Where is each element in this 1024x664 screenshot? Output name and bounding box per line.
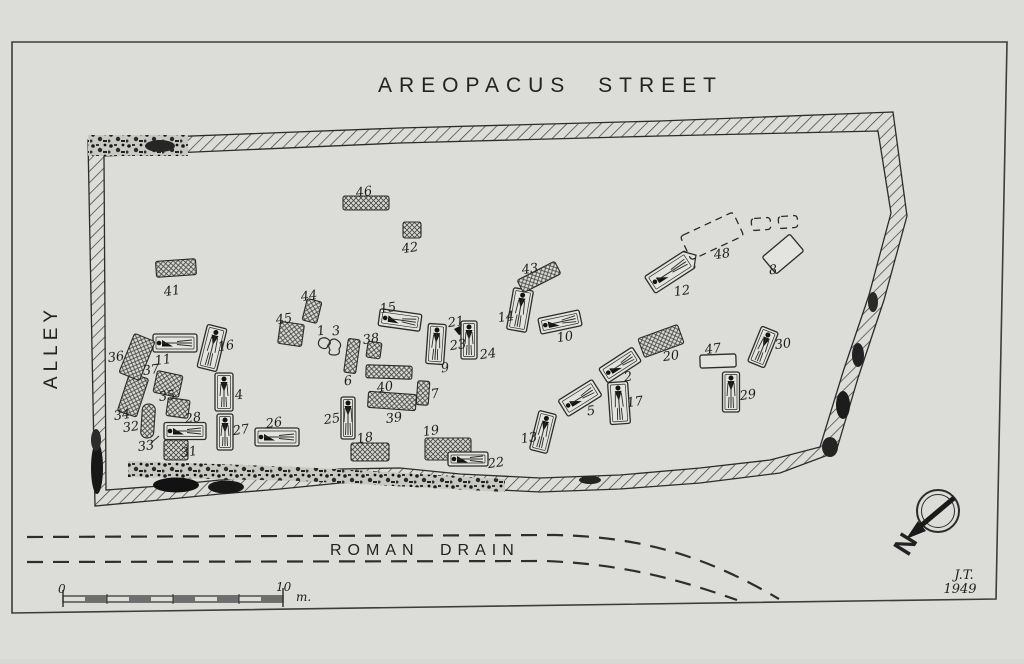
feature-number: 40	[375, 379, 394, 396]
feature-number: 31	[180, 444, 198, 461]
feature-number: 12	[673, 283, 691, 300]
plan-sheet: 1234567891011121314151617181920212223242…	[0, 0, 1024, 659]
feature-number: 36	[107, 349, 125, 366]
feature-number: 34	[113, 407, 131, 424]
feature-40	[366, 365, 412, 380]
feature-dashed-grave	[751, 217, 771, 230]
feature-41	[155, 259, 196, 278]
feature-4	[215, 373, 233, 411]
feature-2	[599, 347, 642, 383]
feature-number: 29	[738, 387, 757, 404]
feature-number: 3	[331, 323, 341, 339]
feature-number: 38	[362, 331, 380, 348]
feature-29	[723, 372, 740, 412]
feature-number: 46	[354, 184, 373, 201]
feature-3	[329, 339, 341, 355]
feature-number: 20	[661, 348, 680, 365]
feature-number: 7	[430, 386, 441, 402]
feature-39	[368, 391, 417, 410]
alley-label: ALLEY	[41, 287, 63, 407]
boundary-wall	[88, 112, 907, 506]
feature-number: 1	[316, 323, 326, 339]
feature-30	[748, 326, 779, 368]
feature-number: 25	[322, 411, 341, 428]
feature-27	[217, 414, 233, 450]
feature-32	[140, 404, 155, 439]
feature-5	[558, 379, 602, 416]
feature-number: 5	[586, 403, 596, 419]
feature-number: 4	[233, 387, 244, 403]
feature-number: 19	[422, 423, 440, 440]
scale-ten: 10	[276, 580, 291, 594]
feature-number: 43	[520, 261, 539, 278]
feature-number: 13	[520, 430, 538, 447]
signature-initials: J.T.	[940, 568, 988, 583]
feature-9	[426, 323, 447, 364]
feature-number: 27	[231, 422, 251, 439]
feature-11	[153, 334, 197, 352]
feature-number: 26	[264, 415, 283, 432]
feature-number: 33	[137, 438, 155, 455]
feature-number: 9	[440, 360, 450, 376]
feature-7	[416, 381, 430, 406]
feature-6	[344, 338, 361, 373]
scale-zero: 0	[58, 582, 66, 596]
feature-25	[341, 397, 355, 439]
roman-drain-label: ROMAN DRAIN	[330, 542, 500, 560]
feature-dashed-grave	[778, 215, 798, 228]
feature-number: 37	[142, 362, 161, 379]
feature-number: 10	[556, 329, 574, 346]
feature-number: 14	[497, 309, 515, 326]
signature-year: 1949	[936, 582, 984, 597]
feature-number: 18	[356, 430, 374, 447]
feature-number: 48	[712, 246, 731, 263]
wall-stones	[88, 135, 878, 494]
feature-26	[255, 428, 299, 446]
feature-number: 17	[626, 394, 645, 411]
photo-of-plan: { "title": "AREOPACUS STREET", "side_lab…	[0, 0, 1024, 659]
feature-number: 6	[343, 373, 353, 389]
feature-42	[403, 222, 421, 238]
feature-number: 47	[703, 341, 723, 358]
street-title: AREOPACUS STREET	[378, 74, 723, 98]
scale-bar	[63, 588, 283, 607]
features-layer	[117, 196, 804, 466]
site-plan-svg: 1234567891011121314151617181920212223242…	[0, 0, 1024, 659]
feature-number: 15	[379, 300, 397, 317]
feature-number: 45	[274, 311, 293, 328]
feature-number: 24	[478, 346, 497, 363]
feature-number: 16	[217, 338, 235, 355]
feature-number: 39	[385, 410, 403, 427]
feature-number: 21	[446, 314, 465, 331]
feature-18	[351, 443, 389, 461]
feature-number: 44	[299, 288, 318, 305]
feature-number: 41	[162, 283, 181, 300]
feature-number: 28	[183, 410, 202, 427]
feature-number: 35	[158, 388, 176, 405]
feature-number: 30	[774, 336, 792, 353]
feature-number: 22	[486, 455, 505, 472]
feature-number: 42	[400, 240, 419, 257]
feature-22	[448, 452, 488, 466]
scale-unit: m.	[296, 590, 311, 604]
feature-number: 23	[448, 337, 467, 354]
